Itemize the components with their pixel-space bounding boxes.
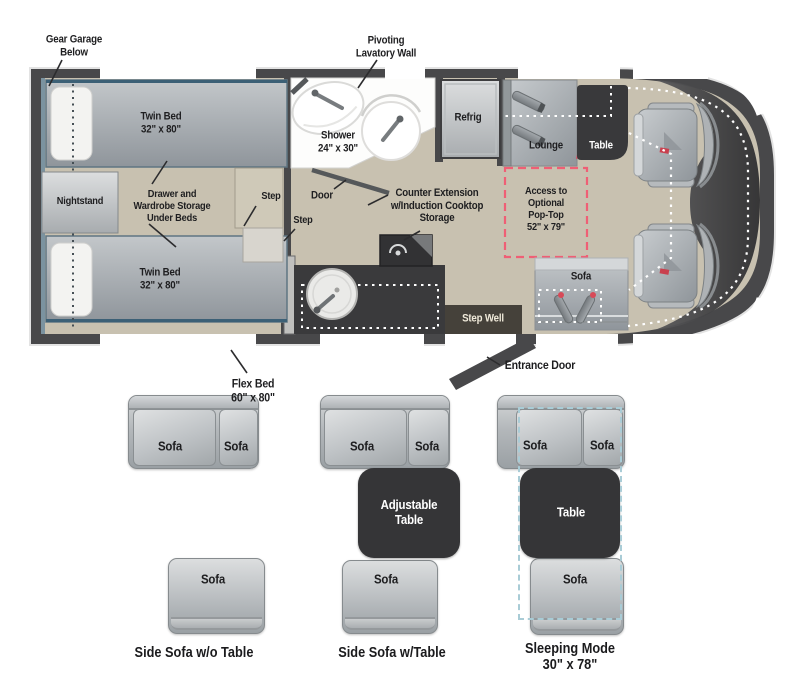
gear-garage-callout: Gear Garage Below <box>46 33 102 58</box>
counter-extension-label: Counter Extension w/Induction Cooktop St… <box>391 187 483 225</box>
door-label: Door <box>311 190 333 203</box>
config2-table-label: Adjustable Table <box>381 498 438 528</box>
pop-top-label: Access to Optional Pop-Top 52" x 79" <box>525 186 567 234</box>
storage-label: Drawer and Wardrobe Storage Under Beds <box>134 189 211 225</box>
step-lower-label: Step <box>293 215 312 227</box>
pivoting-lavatory-callout: Pivoting Lavatory Wall <box>356 34 416 59</box>
twin-bed-bottom-label: Twin Bed 32" x 80" <box>140 266 181 291</box>
pillow-top <box>51 87 92 160</box>
config1-sofa-right-cushion <box>219 409 258 466</box>
twin-bed-top-label: Twin Bed 32" x 80" <box>141 110 182 135</box>
cab-chair-rear <box>634 224 718 308</box>
config1-side-sofa <box>168 558 265 634</box>
nightstand-label: Nightstand <box>57 196 103 208</box>
flex-bed-callout: Flex Bed 60" x 80" <box>231 377 275 404</box>
config1-sofa-left-label: Sofa <box>158 440 182 455</box>
config2-side-sofa-label: Sofa <box>374 573 398 588</box>
config3-sofa-right-label: Sofa <box>590 439 614 454</box>
step-well-label: Step Well <box>462 313 504 326</box>
config3-sofa-left-label: Sofa <box>523 439 547 454</box>
refrig-label: Refrig <box>455 112 482 125</box>
rv-floorplan-diagram: Gear Garage Below Pivoting Lavatory Wall… <box>0 0 800 682</box>
entrance-door-callout: Entrance Door <box>505 359 575 373</box>
config2-sofa-pair <box>320 395 450 469</box>
lounge-seat <box>503 80 585 166</box>
pillow-bottom <box>51 243 92 316</box>
config2-side-sofa-rail <box>345 617 435 630</box>
config2-caption: Side Sofa w/Table <box>338 645 446 661</box>
config1-sofa-left-cushion <box>133 409 216 466</box>
step-upper-label: Step <box>261 191 280 203</box>
sofa-shape <box>535 258 628 330</box>
config2-sofa-back-rail <box>321 396 449 410</box>
config2-sofa-right-label: Sofa <box>415 440 439 455</box>
sofa-floorplan-label: Sofa <box>571 271 591 284</box>
counter-sink <box>307 269 357 319</box>
cab-chair-front <box>634 103 718 187</box>
config1-sofa-pair <box>128 395 259 469</box>
shower-label: Shower 24" x 30" <box>318 129 358 154</box>
config1-sofa-right-label: Sofa <box>224 440 248 455</box>
config3-side-sofa-label: Sofa <box>563 573 587 588</box>
config2-sofa-left-cushion <box>324 409 407 466</box>
config1-caption: Side Sofa w/o Table <box>135 645 254 661</box>
config3-table-label: Table <box>557 506 585 521</box>
config2-sofa-right-cushion <box>408 409 449 466</box>
config3-caption: Sleeping Mode 30" x 78" <box>525 641 615 673</box>
config2-sofa-left-label: Sofa <box>350 440 374 455</box>
table-label: Table <box>589 140 613 153</box>
config1-side-sofa-rail <box>171 617 262 630</box>
lounge-label: Lounge <box>529 140 563 153</box>
config1-side-sofa-label: Sofa <box>201 573 225 588</box>
